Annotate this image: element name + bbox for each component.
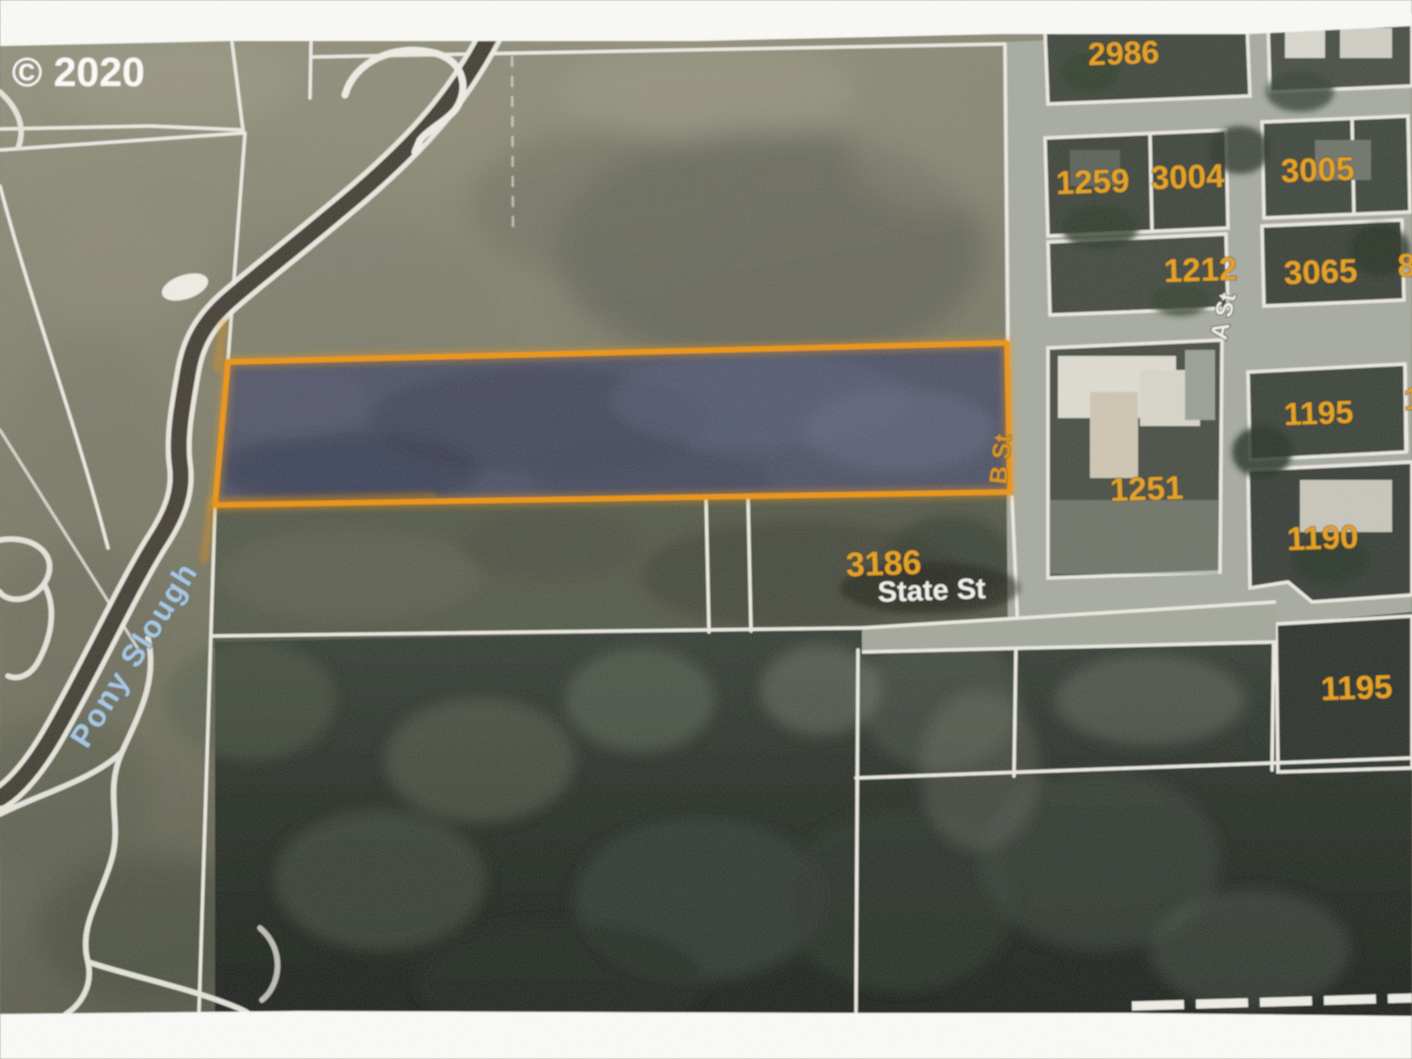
parcel-map-photo: 2986 1259 3004 3005 1212 3065 8 1195 1 1… <box>0 0 1412 1059</box>
map-canvas: 2986 1259 3004 3005 1212 3065 8 1195 1 1… <box>0 0 1412 1059</box>
photo-grain-overlay <box>0 0 1412 1059</box>
